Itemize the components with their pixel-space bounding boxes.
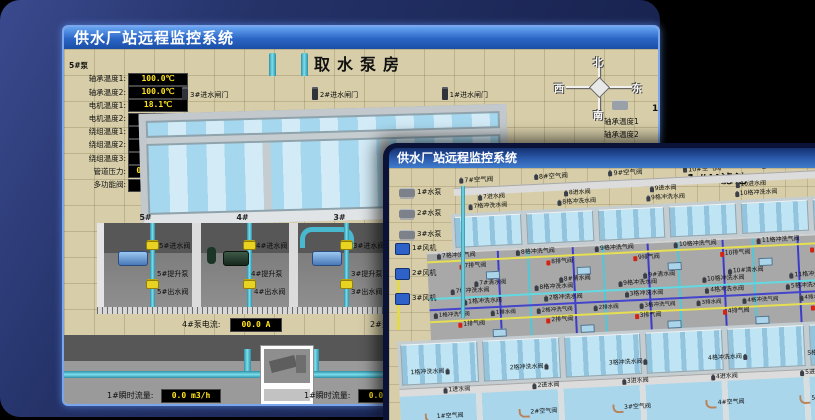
valve-label: 3排气阀 bbox=[640, 312, 662, 320]
air-valve-row-near: 1#空气阀2#空气阀3#空气阀4#空气阀5#空气阀 bbox=[425, 393, 815, 420]
drain-valve[interactable]: 3格冲洗气阀 bbox=[639, 301, 675, 309]
valve-icon bbox=[743, 355, 747, 360]
air-valve[interactable]: 1#空气阀 bbox=[425, 412, 464, 420]
elbow-pipe-icon bbox=[706, 399, 717, 409]
valve-label: 11#空气阀 bbox=[767, 168, 801, 170]
equipment-photo-image bbox=[264, 349, 310, 383]
valve-label: 7进水阀 bbox=[483, 193, 505, 201]
wash-pump: 2#水泵 bbox=[399, 203, 441, 224]
fan-icon[interactable] bbox=[395, 268, 410, 280]
outlet-valve-label: 3#出水阀 bbox=[351, 289, 382, 297]
valve-label: 3排水阀 bbox=[701, 299, 721, 306]
air-valve[interactable]: 3#空气阀 bbox=[612, 403, 651, 414]
filter-cell bbox=[809, 321, 815, 366]
valve-label: 4#空气阀 bbox=[718, 399, 745, 407]
gate-valve-icon[interactable] bbox=[442, 89, 448, 100]
valve-icon bbox=[735, 192, 739, 197]
pump5-panel-title: 5#泵 bbox=[69, 60, 88, 71]
wash-water-valve[interactable]: 4格冲洗水阀 bbox=[705, 286, 744, 294]
telemetry-label: 电机温度1: bbox=[68, 102, 126, 110]
elbow-pipe-icon bbox=[799, 395, 810, 405]
tank-icon bbox=[493, 329, 507, 338]
filter-pool-window: 供水厂站远程监控系统 1#V滤池 1#水泵 bbox=[383, 143, 815, 420]
filter-cell bbox=[526, 210, 594, 244]
air-valve[interactable]: 7#空气阀 bbox=[459, 176, 493, 185]
drain-valve[interactable]: 1排水阀 bbox=[491, 309, 516, 316]
filter-cell bbox=[564, 333, 643, 378]
exhaust-valve[interactable]: 5排气阀 bbox=[811, 303, 815, 311]
valve-icon bbox=[534, 175, 538, 180]
back-window-titlebar[interactable]: 供水厂站远程监控系统 bbox=[64, 27, 658, 49]
pump4-current-label: 4#泵电流: bbox=[182, 321, 221, 330]
outlet-valve-label: 4#出水阀 bbox=[254, 289, 285, 297]
filter-cell bbox=[741, 200, 809, 234]
air-valve[interactable]: 4#空气阀 bbox=[706, 398, 745, 409]
inlet-valve[interactable]: 9进水阀 bbox=[650, 185, 677, 193]
valve-label: 1进水阀 bbox=[448, 386, 470, 394]
valve-label: 8进水阀 bbox=[569, 189, 591, 197]
telemetry-row: 轴承温度1: 100.0℃ bbox=[68, 73, 200, 86]
exhaust-valve-icon bbox=[458, 322, 462, 327]
valve-icon bbox=[459, 179, 463, 184]
drain-valve[interactable]: 4排水阀 bbox=[799, 294, 815, 301]
valve-label: 10格冲洗水阀 bbox=[707, 275, 745, 283]
pump-label: 2#水泵 bbox=[417, 210, 441, 218]
air-valve[interactable]: 11#空气阀 bbox=[762, 168, 801, 170]
filter-structure: 7#空气阀8#空气阀9#空气阀10#空气阀11#空气阀12#空气阀 7进水阀8进… bbox=[389, 168, 815, 420]
valve-icon bbox=[516, 251, 520, 256]
valve-icon bbox=[646, 196, 650, 201]
pump1-icon[interactable] bbox=[612, 101, 628, 110]
pump-icon[interactable] bbox=[399, 210, 415, 218]
telemetry-label: 绕组温度2: bbox=[68, 141, 126, 149]
pump-bay: 4#进水阀 4#提升泵 4#出水阀 bbox=[201, 223, 298, 307]
lift-pump-icon[interactable] bbox=[118, 251, 148, 266]
wash-water-valve[interactable]: 2格冲洗水阀 bbox=[544, 294, 583, 302]
filter-cell bbox=[400, 341, 479, 386]
lift-pump-icon[interactable] bbox=[312, 251, 342, 266]
valve-label: 1格冲洗气阀 bbox=[439, 311, 470, 319]
compass-west: 西 bbox=[554, 80, 564, 95]
valve-label: 8格冲洗水阀 bbox=[539, 283, 573, 291]
inlet-gate: 1#进水闸门 bbox=[442, 89, 488, 100]
back-window-title: 供水厂站远程监控系统 bbox=[74, 29, 234, 47]
valve-label: 4进水阀 bbox=[716, 373, 738, 381]
filter-cell bbox=[482, 337, 561, 382]
tank-icon bbox=[580, 324, 594, 333]
inlet-valve-label: 4#进水阀 bbox=[256, 243, 287, 251]
inlet-valve[interactable]: 4进水阀 bbox=[711, 373, 738, 381]
flow-left-display[interactable]: 0.0 m3/h bbox=[161, 389, 221, 403]
filter-window-inner: 供水厂站远程监控系统 1#V滤池 1#水泵 bbox=[389, 148, 815, 420]
valve-label: 1排气阀 bbox=[463, 321, 485, 329]
valve-label: 8#空气阀 bbox=[539, 172, 568, 181]
valve-icon bbox=[618, 282, 622, 287]
valve-icon bbox=[735, 183, 739, 188]
filter-cell bbox=[645, 329, 724, 374]
lift-pump-label: 5#提升泵 bbox=[157, 271, 188, 279]
filter-cell bbox=[598, 207, 666, 241]
valve-label: 5格冲洗水阀 bbox=[791, 282, 815, 290]
valve-label: 9格冲洗水阀 bbox=[651, 194, 685, 202]
valve-label: 8排气阀 bbox=[551, 258, 573, 266]
valve-icon bbox=[534, 286, 538, 291]
telemetry-label: 轴承温度2 bbox=[604, 131, 639, 139]
inlet-valve-label: 5#进水阀 bbox=[159, 243, 190, 251]
valve-icon bbox=[800, 371, 804, 376]
inlet-valve[interactable]: 7进水阀 bbox=[478, 193, 505, 201]
valve-label: 4格冲洗气阀 bbox=[747, 296, 778, 304]
exhaust-valve[interactable]: 11排气阀 bbox=[810, 245, 815, 253]
valve-label: 5格冲洗水阀 bbox=[807, 349, 815, 357]
gate-valve-icon[interactable] bbox=[312, 89, 318, 100]
fan-label: 1#风机 bbox=[412, 245, 436, 253]
exhaust-valve[interactable]: 2排气阀 bbox=[546, 316, 573, 324]
valve-label: 9格冲洗水阀 bbox=[623, 279, 657, 287]
pump1-telemetry-labels: 轴承温度1轴承温度2 bbox=[604, 118, 639, 145]
drain-valve[interactable]: 3排水阀 bbox=[696, 299, 721, 306]
air-valve[interactable]: 10#空气阀 bbox=[683, 168, 722, 174]
exhaust-valve-icon bbox=[723, 310, 727, 315]
wash-water-valve[interactable]: 9格冲洗水阀 bbox=[646, 194, 685, 202]
front-window-titlebar[interactable]: 供水厂站远程监控系统 bbox=[389, 148, 815, 168]
exhaust-valve-icon bbox=[546, 318, 550, 323]
exhaust-valve-icon bbox=[635, 314, 639, 319]
fan-label: 3#风机 bbox=[412, 295, 436, 303]
valve-icon bbox=[491, 311, 495, 316]
valve-icon bbox=[564, 191, 568, 196]
telemetry-label: 多功能阀: bbox=[68, 181, 126, 189]
valve-icon bbox=[705, 288, 709, 293]
valve-label: 7#空气阀 bbox=[464, 176, 493, 185]
valve-icon bbox=[696, 301, 700, 306]
valve-label: 9排气阀 bbox=[638, 254, 660, 262]
telemetry-label: 管道压力: bbox=[68, 168, 126, 176]
compass-east: 东 bbox=[632, 80, 642, 95]
valve-label: 5进水阀 bbox=[805, 369, 815, 377]
valve-label: 11格冲洗水阀 bbox=[794, 271, 815, 279]
inlet-valve[interactable]: 2进水阀 bbox=[533, 382, 560, 390]
wash-pump: 1#水泵 bbox=[399, 182, 441, 203]
tank-icon bbox=[758, 257, 772, 266]
filter-pool-scene: 1#V滤池 1#水泵 bbox=[389, 168, 815, 420]
pump-bay: 3#进水阀 3#提升泵 3#出水阀 bbox=[298, 223, 395, 307]
valve-icon bbox=[451, 290, 455, 295]
valve-label: 2#空气阀 bbox=[530, 408, 557, 416]
valve-icon bbox=[445, 369, 449, 374]
valve-label: 2排气阀 bbox=[551, 316, 573, 324]
riser-pipe bbox=[301, 53, 308, 76]
telemetry-row: 轴承温度2: 100.0℃ bbox=[68, 86, 200, 99]
valve-icon bbox=[544, 296, 548, 301]
inlet-gates-row: 3#进水闸门 2#进水闸门 1#进水闸门 bbox=[182, 89, 488, 100]
telemetry-label: 轴承温度1 bbox=[604, 118, 639, 126]
wash-water-valve[interactable]: 11格冲洗水阀 bbox=[789, 271, 815, 280]
exhaust-valve-icon bbox=[811, 305, 815, 310]
lift-pump-label: 4#提升泵 bbox=[251, 271, 282, 279]
valve-label: 9进水阀 bbox=[655, 185, 677, 193]
valve-icon bbox=[790, 273, 794, 278]
valve-label: 2格冲洗水阀 bbox=[549, 294, 583, 302]
air-valve[interactable]: 9#空气阀 bbox=[608, 169, 642, 178]
pump-icon[interactable] bbox=[399, 189, 415, 197]
scene-title: 取水泵房 bbox=[314, 51, 406, 75]
wash-water-valve[interactable]: 3格冲洗水阀 bbox=[624, 290, 663, 298]
bay-number: 3# bbox=[291, 213, 388, 222]
inlet-valve[interactable]: 5进水阀 bbox=[800, 369, 815, 377]
wash-water-valve[interactable]: 1格冲洗水阀 bbox=[463, 298, 502, 306]
inlet-valve[interactable]: 8进水阀 bbox=[564, 189, 591, 197]
drain-valve[interactable]: 4格冲洗气阀 bbox=[742, 296, 778, 304]
inlet-valve[interactable]: 10进水阀 bbox=[735, 181, 766, 189]
exhaust-valve[interactable]: 8排气阀 bbox=[546, 258, 573, 266]
fan-icon[interactable] bbox=[395, 243, 410, 255]
pump-bay: 5#进水阀 5#提升泵 5#出水阀 bbox=[104, 223, 201, 307]
valve-label: 10#空气阀 bbox=[688, 168, 722, 174]
gate-valve-icon[interactable] bbox=[182, 89, 188, 100]
valve-label: 1格冲洗水阀 bbox=[468, 298, 502, 306]
exhaust-valve-icon bbox=[546, 260, 550, 265]
telemetry-value-display[interactable]: 100.0℃ bbox=[128, 73, 188, 86]
valve-label: 8格冲洗水阀 bbox=[562, 198, 596, 206]
valve-icon bbox=[594, 306, 598, 311]
flow-right-label: 1#瞬时流量: bbox=[304, 392, 351, 401]
inlet-valve[interactable]: 3进水阀 bbox=[622, 378, 649, 386]
scada-desktop: 供水厂站远程监控系统 取水泵房 北 西 南 东 5#泵 轴承温度1: bbox=[0, 0, 815, 420]
inlet-gate: 3#进水闸门 bbox=[182, 89, 228, 100]
valve-icon bbox=[762, 168, 766, 169]
inlet-valve-label: 3#进水阀 bbox=[353, 243, 384, 251]
valve-icon bbox=[742, 298, 746, 303]
wash-water-valve[interactable]: 10格冲洗水阀 bbox=[735, 189, 778, 198]
telemetry-value-display[interactable]: 100.0℃ bbox=[128, 86, 188, 99]
valve-label: 3#空气阀 bbox=[624, 404, 651, 412]
lift-pump-label: 3#提升泵 bbox=[351, 271, 382, 279]
telemetry-label: 电机温度2: bbox=[68, 115, 126, 123]
valve-icon bbox=[644, 359, 648, 364]
valve-label: 10排气阀 bbox=[725, 250, 751, 258]
drain-valve[interactable]: 2格冲洗气阀 bbox=[537, 306, 573, 314]
exhaust-valve-icon bbox=[633, 256, 637, 261]
lift-pump-icon[interactable] bbox=[223, 251, 249, 266]
pump1-panel-title: 1 bbox=[652, 104, 658, 114]
exhaust-valve-icon bbox=[720, 252, 724, 257]
valve-icon bbox=[624, 292, 628, 297]
valve-icon bbox=[702, 278, 706, 283]
valve-label: 3进水阀 bbox=[627, 378, 649, 386]
valve-label: 7排气阀 bbox=[464, 262, 486, 270]
valve-icon bbox=[434, 313, 438, 318]
tank-icon bbox=[667, 320, 681, 329]
pump4-current-display[interactable]: 00.0 A bbox=[230, 318, 282, 332]
inlet-valve[interactable]: 1进水阀 bbox=[443, 386, 470, 394]
compass-south: 南 bbox=[593, 107, 603, 122]
outlet-stub-pipe bbox=[244, 349, 251, 372]
inlet-valve-icon[interactable] bbox=[146, 241, 159, 250]
valve-label: 7格冲洗水阀 bbox=[473, 202, 507, 210]
valve-label: 10格冲洗水阀 bbox=[740, 189, 778, 197]
blowers: 1#风机 2#风机 3#风机 bbox=[395, 236, 436, 311]
flow-left-label: 1#瞬时流量: bbox=[107, 392, 154, 401]
valve-label: 2格冲洗气阀 bbox=[542, 306, 573, 314]
valve-label: 1排水阀 bbox=[496, 309, 516, 316]
equipment-pipe bbox=[461, 186, 465, 318]
fan-icon[interactable] bbox=[395, 293, 410, 305]
valve-icon bbox=[478, 195, 482, 200]
wash-water-valve[interactable]: 5格冲洗水阀 bbox=[786, 282, 815, 290]
gate-valve-label: 3#进水闸门 bbox=[190, 92, 228, 100]
valve-label: 3格冲洗气阀 bbox=[644, 301, 675, 309]
valve-label: 3格冲洗水阀 bbox=[629, 290, 663, 298]
valve-icon bbox=[533, 384, 537, 389]
telemetry-label: 绕组温度1: bbox=[68, 128, 126, 136]
exhaust-valve[interactable]: 1排气阀 bbox=[458, 321, 485, 329]
valve-icon bbox=[468, 205, 472, 210]
valve-icon bbox=[650, 187, 654, 192]
air-valve[interactable]: 5#空气阀 bbox=[799, 393, 815, 404]
valve-icon bbox=[557, 200, 561, 205]
valve-icon bbox=[757, 239, 761, 244]
valve-icon bbox=[443, 388, 447, 393]
inlet-valve-icon[interactable] bbox=[340, 241, 353, 250]
wash-water-valve[interactable]: 7格冲洗水阀 bbox=[451, 287, 490, 295]
exhaust-valve-icon bbox=[810, 247, 814, 252]
elbow-pipe-icon bbox=[518, 409, 529, 419]
gate-valve-label: 2#进水闸门 bbox=[320, 92, 358, 100]
valve-icon bbox=[711, 375, 715, 380]
riser-pipe bbox=[269, 53, 276, 76]
bay-pipe bbox=[344, 223, 349, 307]
valve-icon bbox=[595, 247, 599, 252]
valve-icon bbox=[437, 254, 441, 259]
front-window-title: 供水厂站远程监控系统 bbox=[397, 151, 517, 165]
fan-label: 2#风机 bbox=[412, 270, 436, 278]
telemetry-label: 轴承温度2: bbox=[68, 89, 126, 97]
blower: 3#风机 bbox=[395, 286, 436, 311]
valve-icon bbox=[786, 284, 790, 289]
inlet-gate: 2#进水闸门 bbox=[312, 89, 358, 100]
valve-label: 4排水阀 bbox=[804, 294, 815, 301]
exhaust-valve[interactable]: 4排气阀 bbox=[723, 308, 750, 316]
outlet-valve-label: 5#出水阀 bbox=[157, 289, 188, 297]
telemetry-value-display[interactable]: 18.1℃ bbox=[128, 99, 188, 112]
valve-label: 2进水阀 bbox=[538, 382, 560, 390]
valve-icon bbox=[622, 380, 626, 385]
compass-north: 北 bbox=[593, 54, 603, 69]
valve-icon bbox=[674, 243, 678, 248]
wash-water-valve[interactable]: 8格冲洗水阀 bbox=[534, 283, 573, 291]
valve-label: 10进水阀 bbox=[740, 181, 766, 189]
bay-number: 5# bbox=[97, 213, 194, 222]
gate-valve-label: 1#进水闸门 bbox=[450, 92, 488, 100]
blower: 1#风机 bbox=[395, 236, 436, 261]
valve-label: 4排气阀 bbox=[728, 308, 750, 316]
drain-valve[interactable]: 2排水阀 bbox=[594, 304, 619, 311]
valve-label: 1#空气阀 bbox=[437, 413, 464, 420]
elbow-pipe-icon bbox=[612, 404, 623, 414]
elbow-pipe-icon bbox=[425, 413, 436, 420]
valve-label: 5#空气阀 bbox=[811, 395, 815, 403]
air-valve[interactable]: 2#空气阀 bbox=[518, 407, 557, 418]
bay-number: 4# bbox=[194, 213, 291, 222]
tank-icon bbox=[755, 316, 769, 325]
valve-icon bbox=[537, 308, 541, 313]
bay-pipe bbox=[150, 223, 155, 307]
telemetry-row: 电机温度1: 18.1℃ bbox=[68, 99, 200, 112]
valve-icon bbox=[544, 364, 548, 369]
exhaust-valve[interactable]: 9排气阀 bbox=[633, 254, 660, 262]
valve-icon bbox=[683, 168, 687, 173]
wash-water-valve[interactable]: 7格冲洗水阀 bbox=[468, 202, 507, 210]
valve-label: 9#空气阀 bbox=[613, 169, 642, 178]
exhaust-valve[interactable]: 3排气阀 bbox=[635, 312, 662, 320]
blower: 2#风机 bbox=[395, 261, 436, 286]
valve-label: 4格冲洗水阀 bbox=[710, 286, 744, 294]
filter-cell bbox=[727, 325, 806, 370]
valve-icon bbox=[799, 295, 803, 300]
filter-cell bbox=[669, 203, 737, 237]
wash-water-valve[interactable]: 8格冲洗水阀 bbox=[557, 198, 596, 206]
wash-water-valve[interactable]: 5格冲洗水阀 bbox=[807, 349, 815, 357]
pump-label: 1#水泵 bbox=[417, 189, 441, 197]
inlet-valve-icon[interactable] bbox=[243, 241, 256, 250]
valve-label: 2排水阀 bbox=[599, 304, 619, 311]
exhaust-valve[interactable]: 10排气阀 bbox=[720, 250, 751, 258]
telemetry-label: 绕组温度3: bbox=[68, 155, 126, 163]
air-valve[interactable]: 8#空气阀 bbox=[534, 172, 568, 181]
valve-icon bbox=[639, 303, 643, 308]
valve-icon bbox=[608, 171, 612, 176]
wash-water-valve[interactable]: 9格冲洗水阀 bbox=[618, 279, 657, 287]
telemetry-label: 轴承温度1: bbox=[68, 75, 126, 83]
